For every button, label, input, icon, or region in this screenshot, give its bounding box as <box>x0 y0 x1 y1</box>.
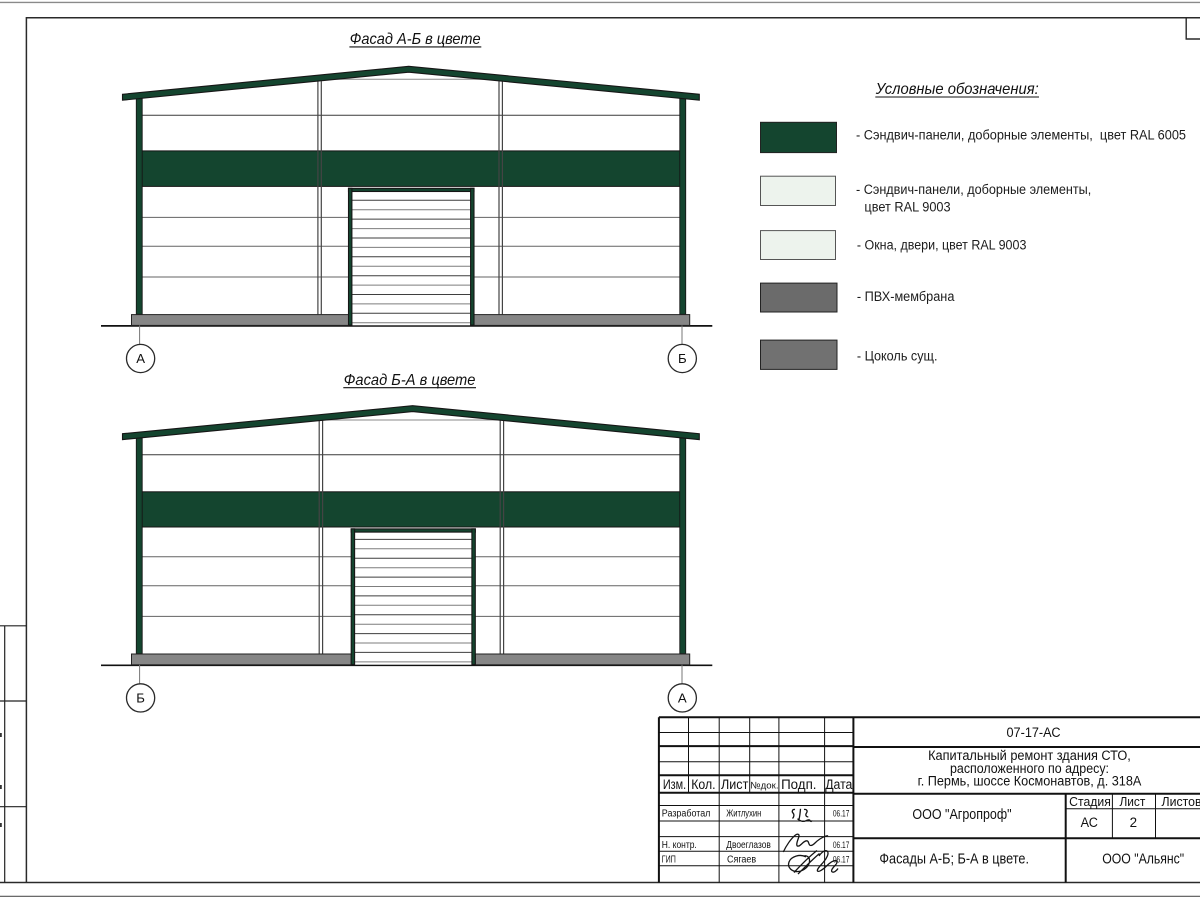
svg-text:07-17-АС: 07-17-АС <box>1007 725 1061 740</box>
svg-text:Листов: Листов <box>1162 795 1200 809</box>
svg-text:06.17: 06.17 <box>833 809 850 820</box>
svg-text:цвет RAL 9003: цвет RAL 9003 <box>864 200 950 215</box>
svg-text:- Сэндвич-панели, доборные эле: - Сэндвич-панели, доборные элементы, <box>856 182 1091 197</box>
svg-text:АС: АС <box>1081 815 1099 830</box>
svg-text:ГИП: ГИП <box>662 854 676 865</box>
svg-text:Фасады А-Б; Б-А в цвете.: Фасады А-Б; Б-А в цвете. <box>879 852 1029 868</box>
svg-text:Н. контр.: Н. контр. <box>662 840 697 851</box>
svg-text:Фасад А-Б в цвете: Фасад А-Б в цвете <box>350 31 481 48</box>
svg-text:Кол.: Кол. <box>691 777 715 792</box>
svg-text:- Сэндвич-панели, доборные эле: - Сэндвич-панели, доборные элементы, цве… <box>856 128 1186 143</box>
svg-text:Стадия: Стадия <box>1069 795 1111 809</box>
svg-text:Б: Б <box>136 691 145 706</box>
svg-text:06.17: 06.17 <box>833 840 850 851</box>
svg-text:Лист: Лист <box>721 777 748 792</box>
svg-text:Б: Б <box>678 351 687 366</box>
svg-text:Житлухин: Житлухин <box>726 809 761 820</box>
svg-text:Двоеглазов: Двоеглазов <box>726 840 771 851</box>
svg-text:ООО "Агропроф": ООО "Агропроф" <box>912 806 1011 823</box>
svg-text:Изм.: Изм. <box>663 777 686 792</box>
svg-text:№док.: №док. <box>750 780 778 791</box>
svg-text:- ПВХ-мембрана: - ПВХ-мембрана <box>857 289 955 304</box>
svg-text:Условные обозначения:: Условные обозначения: <box>875 81 1039 98</box>
svg-text:ООО "Альянс": ООО "Альянс" <box>1102 852 1184 868</box>
svg-text:Разработал: Разработал <box>662 809 711 820</box>
svg-text:- Цоколь сущ.: - Цоколь сущ. <box>857 348 938 363</box>
svg-text:- Окна, двери, цвет RAL 9003: - Окна, двери, цвет RAL 9003 <box>857 238 1027 253</box>
svg-text:А: А <box>678 691 687 706</box>
svg-text:Подп.: Подп. <box>781 777 816 792</box>
svg-text:г. Пермь, шоссе Космонавтов, д: г. Пермь, шоссе Космонавтов, д. 318А <box>918 773 1142 788</box>
svg-text:Фасад Б-А в цвете: Фасад Б-А в цвете <box>344 372 476 389</box>
svg-text:Сягаев: Сягаев <box>727 854 756 865</box>
svg-text:06.17: 06.17 <box>833 854 850 865</box>
svg-text:Лист: Лист <box>1119 795 1145 809</box>
svg-text:А: А <box>136 351 145 366</box>
svg-text:Дата: Дата <box>825 777 853 792</box>
svg-text:2: 2 <box>1130 815 1137 830</box>
